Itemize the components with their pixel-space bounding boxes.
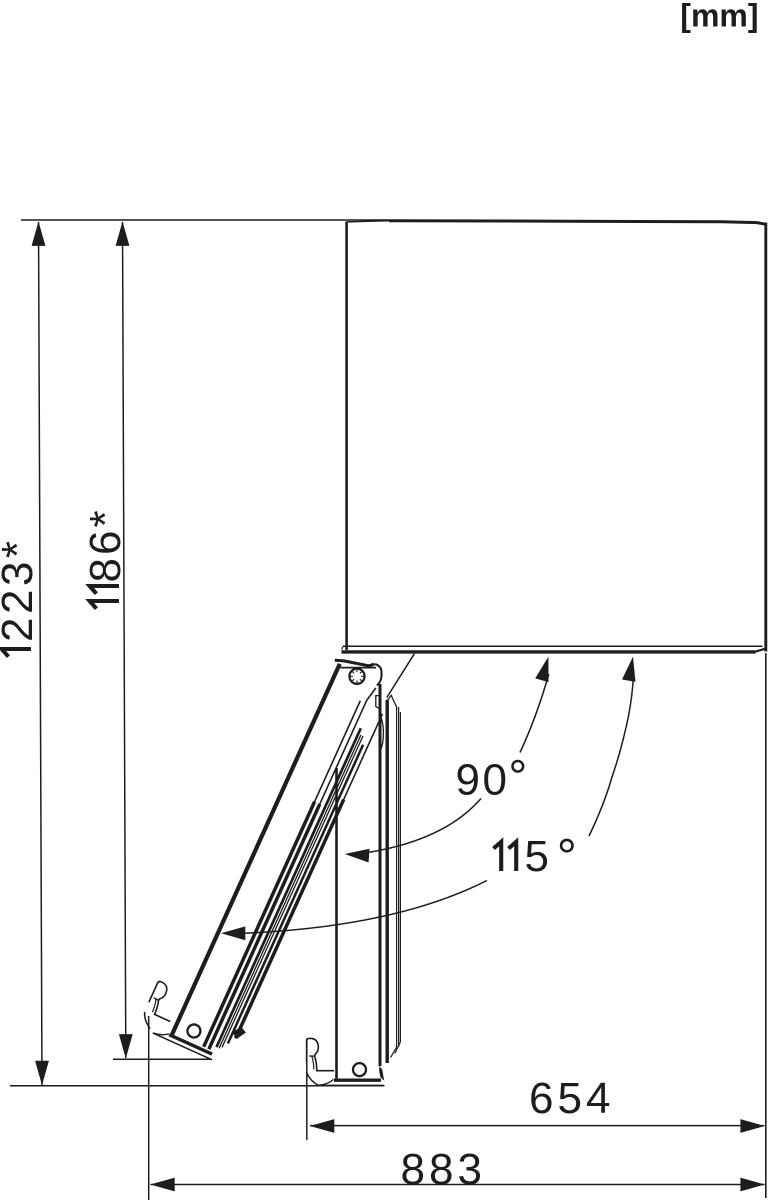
svg-text:86*: 86* — [81, 507, 130, 582]
svg-text:90: 90 — [456, 756, 510, 805]
svg-text:5: 5 — [525, 832, 549, 881]
svg-text:[mm]: [mm] — [680, 0, 758, 33]
svg-text:223*: 223* — [0, 537, 42, 642]
svg-text:883: 883 — [401, 1145, 486, 1194]
svg-text:654: 654 — [529, 1074, 614, 1123]
